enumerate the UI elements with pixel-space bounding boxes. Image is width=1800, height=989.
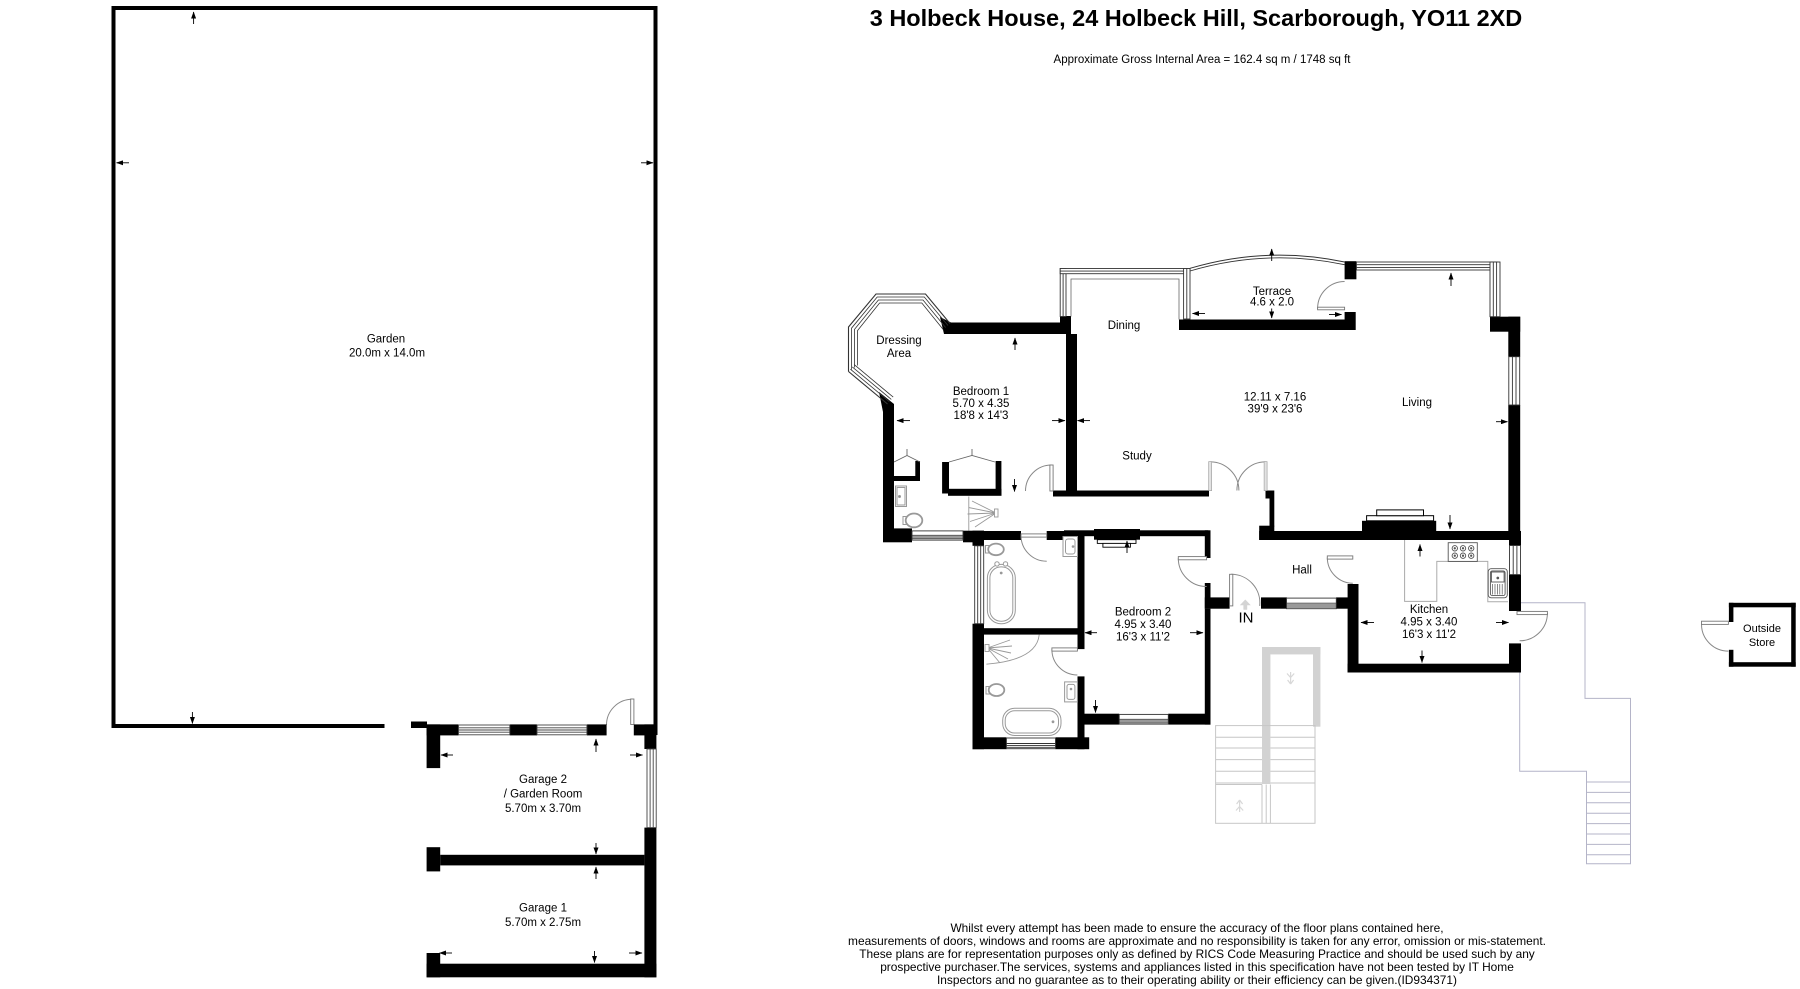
svg-text:Bedroom 1: Bedroom 1 bbox=[953, 386, 1009, 398]
svg-text:Study: Study bbox=[1122, 451, 1152, 463]
svg-text:Kitchen: Kitchen bbox=[1410, 604, 1448, 616]
svg-text:Area: Area bbox=[887, 348, 912, 360]
svg-text:4.6 x 2.0: 4.6 x 2.0 bbox=[1250, 297, 1294, 309]
svg-text:20.0m x 14.0m: 20.0m x 14.0m bbox=[349, 348, 425, 360]
svg-text:prospective purchaser.The serv: prospective purchaser.The services, syst… bbox=[880, 960, 1514, 974]
svg-text:3 Holbeck House, 24 Holbeck Hi: 3 Holbeck House, 24 Holbeck Hill, Scarbo… bbox=[870, 5, 1523, 31]
svg-text:16'3 x 11'2: 16'3 x 11'2 bbox=[1116, 632, 1170, 644]
svg-text:Hall: Hall bbox=[1292, 565, 1312, 577]
svg-text:5.70m x 3.70m: 5.70m x 3.70m bbox=[505, 803, 581, 815]
svg-text:Bedroom 2: Bedroom 2 bbox=[1115, 607, 1171, 619]
svg-text:IN: IN bbox=[1239, 610, 1254, 627]
svg-text:18'8 x 14'3: 18'8 x 14'3 bbox=[954, 410, 1009, 422]
svg-text:Dressing: Dressing bbox=[876, 335, 921, 347]
svg-text:These plans are for representa: These plans are for representation purpo… bbox=[859, 947, 1535, 961]
svg-text:measurements of doors, windows: measurements of doors, windows and rooms… bbox=[848, 934, 1546, 948]
svg-text:Dining: Dining bbox=[1108, 320, 1141, 332]
svg-text:12.11 x 7.16: 12.11 x 7.16 bbox=[1244, 392, 1306, 404]
svg-text:Garage 1: Garage 1 bbox=[519, 903, 567, 915]
svg-text:Living: Living bbox=[1402, 397, 1432, 409]
svg-text:39'9 x 23'6: 39'9 x 23'6 bbox=[1248, 404, 1303, 416]
svg-text:Whilst every attempt has been: Whilst every attempt has been made to en… bbox=[950, 921, 1443, 935]
svg-text:Outside: Outside bbox=[1743, 623, 1781, 635]
svg-text:5.70 x 4.35: 5.70 x 4.35 bbox=[953, 398, 1010, 410]
svg-text:4.95 x 3.40: 4.95 x 3.40 bbox=[1115, 619, 1172, 631]
svg-text:Garden: Garden bbox=[367, 334, 405, 346]
svg-text:Approximate Gross Internal Are: Approximate Gross Internal Area = 162.4 … bbox=[1054, 54, 1352, 66]
svg-text:4.95 x 3.40: 4.95 x 3.40 bbox=[1401, 617, 1458, 629]
svg-text:Inspectors and no guarantee as: Inspectors and no guarantee as to their … bbox=[937, 973, 1457, 987]
svg-text:16'3 x 11'2: 16'3 x 11'2 bbox=[1402, 629, 1456, 641]
svg-text:/ Garden Room: / Garden Room bbox=[504, 789, 583, 801]
svg-text:Garage 2: Garage 2 bbox=[519, 774, 567, 786]
svg-text:5.70m x 2.75m: 5.70m x 2.75m bbox=[505, 917, 581, 929]
svg-text:Store: Store bbox=[1749, 637, 1775, 649]
